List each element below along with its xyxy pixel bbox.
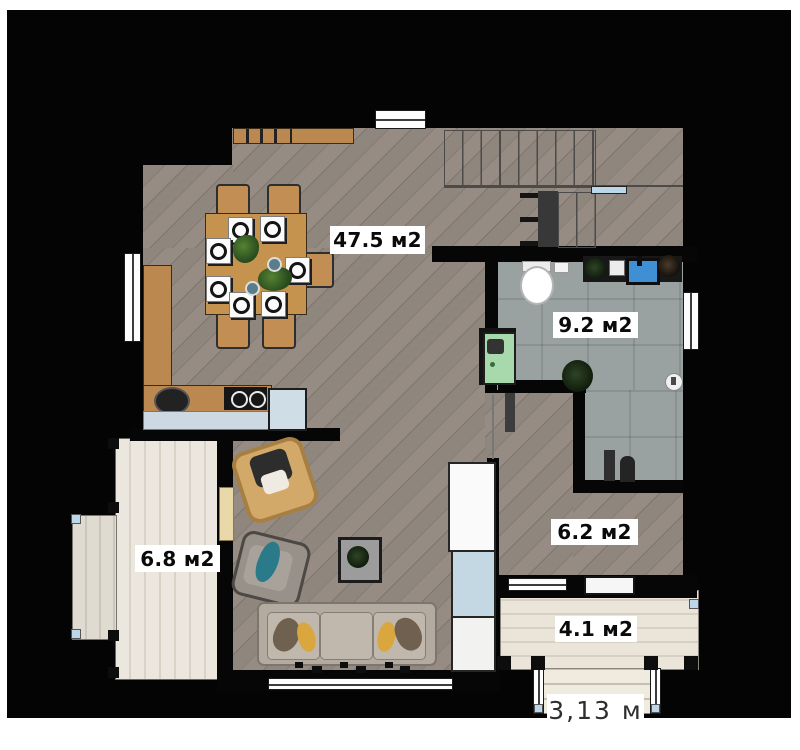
water-tank — [620, 456, 635, 482]
room-label-terrace: 6.8 м2 — [135, 545, 220, 572]
room-label-bathroom-text: 9.2 м2 — [558, 313, 632, 337]
stairs-stub — [520, 193, 538, 198]
shower-left-wall — [573, 385, 585, 485]
kitchen-counter-left — [143, 265, 172, 390]
heater — [604, 450, 615, 481]
counter-plant — [585, 258, 606, 279]
window-living-bottom — [268, 678, 453, 690]
terrace-side-deck — [72, 515, 117, 640]
stairs-landing-line — [444, 185, 683, 187]
stairs-upper-flight — [444, 130, 596, 188]
terrace-door — [219, 487, 234, 541]
deck-post — [108, 438, 119, 449]
plate-setting — [260, 216, 285, 242]
room-label-porch: 4.1 м2 — [555, 616, 637, 642]
room-label-bathroom: 9.2 м2 — [553, 312, 638, 338]
room-label-living-text: 47.5 м2 — [333, 228, 422, 252]
stairs-railing — [538, 191, 558, 247]
cup — [245, 281, 260, 296]
room-label-living: 47.5 м2 — [330, 226, 425, 254]
sofa-leg — [295, 662, 303, 668]
glass-cabinet — [451, 550, 496, 618]
plate-setting — [206, 276, 231, 302]
plate-setting — [206, 238, 231, 264]
wall-art-plant-leaves — [347, 546, 369, 568]
washing-machine-door — [487, 339, 504, 354]
deck-corner-marker — [71, 514, 81, 524]
porch-rail-marker — [689, 599, 699, 609]
bath-sink-tap — [637, 256, 642, 266]
entrance-door — [584, 576, 635, 595]
porch-post — [531, 656, 545, 670]
stove-burner — [249, 391, 266, 408]
hall-window — [508, 578, 567, 591]
wall-shelf — [233, 128, 354, 144]
deck-post — [108, 667, 119, 678]
window-left — [124, 253, 141, 342]
dimension-label: 3,13 м — [547, 694, 644, 727]
counter-plant — [658, 255, 680, 277]
fridge — [268, 388, 307, 431]
lower-cabinet — [451, 616, 496, 672]
stairs-handrail — [591, 186, 627, 194]
bathroom-door-leaf — [505, 393, 515, 432]
cup — [267, 257, 282, 272]
window-top — [375, 110, 426, 129]
deck-post — [108, 502, 119, 513]
stairs-stub — [520, 241, 538, 246]
room-label-porch-text: 4.1 м2 — [559, 617, 633, 641]
step-rail-foot — [651, 704, 660, 713]
bathroom-plant — [562, 360, 593, 392]
porch-post — [644, 656, 658, 670]
floor-plan: 47.5 м2 9.2 м2 6.2 м2 6.8 м2 4.1 м2 3,13… — [0, 0, 800, 750]
counter-item — [609, 260, 625, 276]
sofa-leg — [340, 662, 348, 668]
flush-plate — [554, 262, 569, 273]
deck-corner-marker — [71, 629, 81, 639]
room-label-hall-text: 6.2 м2 — [557, 520, 631, 544]
plate-setting — [261, 291, 286, 317]
stairs-stub — [520, 217, 538, 222]
step-rail-foot — [534, 704, 543, 713]
sofa-leg — [385, 662, 393, 668]
porch-post — [684, 656, 698, 670]
toilet-bowl — [520, 266, 554, 305]
stove-burner — [231, 391, 248, 408]
stairs-lower-flight — [558, 192, 596, 248]
shower-head-dot — [671, 377, 676, 385]
wardrobe — [448, 462, 496, 552]
kitchen-counter-front — [143, 411, 272, 430]
sofa-cushion — [320, 612, 373, 660]
porch-post — [497, 656, 511, 670]
washing-machine-knob — [490, 362, 495, 367]
deck-post — [108, 630, 119, 641]
window-right-bathroom — [683, 292, 699, 350]
room-label-hall: 6.2 м2 — [551, 519, 638, 545]
room-label-terrace-text: 6.8 м2 — [140, 547, 214, 571]
door-threshold-line — [492, 395, 494, 459]
dimension-label-text: 3,13 м — [548, 696, 642, 725]
bath-sink — [626, 258, 660, 285]
